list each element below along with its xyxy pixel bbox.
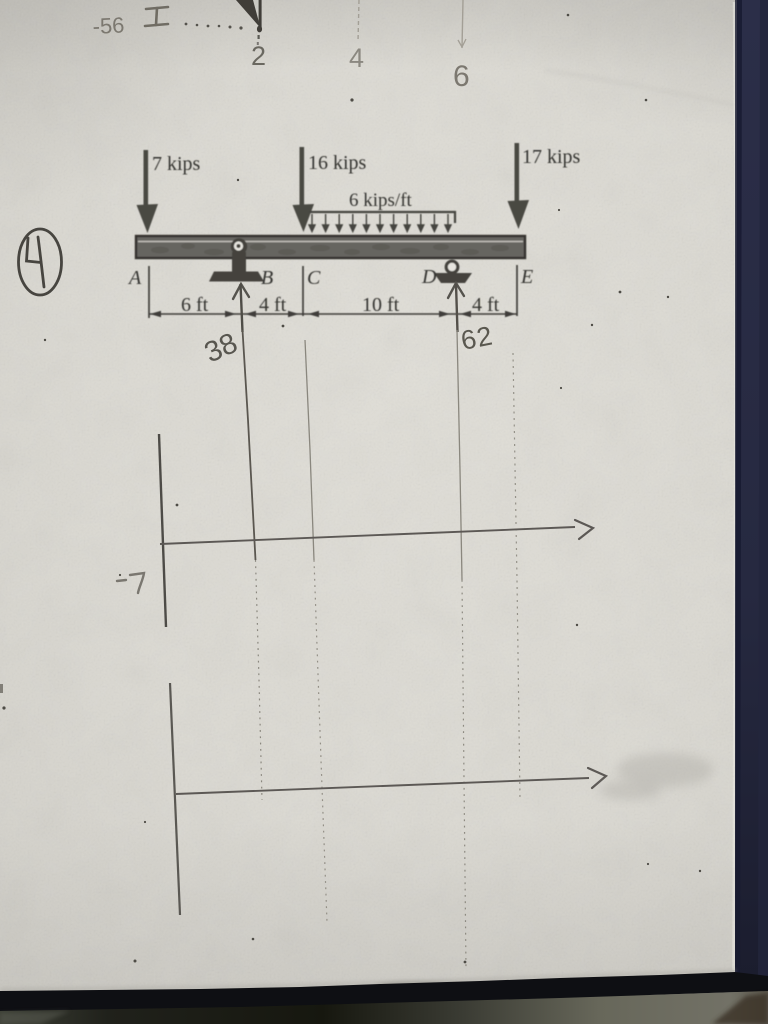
svg-text:C: C xyxy=(307,267,321,289)
svg-text:4: 4 xyxy=(349,43,364,73)
svg-text:17 kips: 17 kips xyxy=(522,146,581,168)
svg-text:-56: -56 xyxy=(92,12,125,39)
svg-text:A: A xyxy=(127,267,142,289)
svg-text:D: D xyxy=(421,266,437,288)
svg-text:6 kips/ft: 6 kips/ft xyxy=(349,190,413,211)
svg-text:6: 6 xyxy=(453,60,470,93)
svg-text:E: E xyxy=(520,266,533,288)
svg-text:4 ft: 4 ft xyxy=(259,294,287,316)
svg-text:62: 62 xyxy=(458,320,495,356)
svg-text:4 ft: 4 ft xyxy=(472,294,500,316)
svg-text:7 kips: 7 kips xyxy=(152,153,201,175)
svg-text:10 ft: 10 ft xyxy=(362,294,400,316)
svg-text:16 kips: 16 kips xyxy=(308,152,367,174)
svg-text:B: B xyxy=(261,267,273,289)
svg-text:2: 2 xyxy=(251,41,266,71)
svg-text:6 ft: 6 ft xyxy=(181,294,209,316)
